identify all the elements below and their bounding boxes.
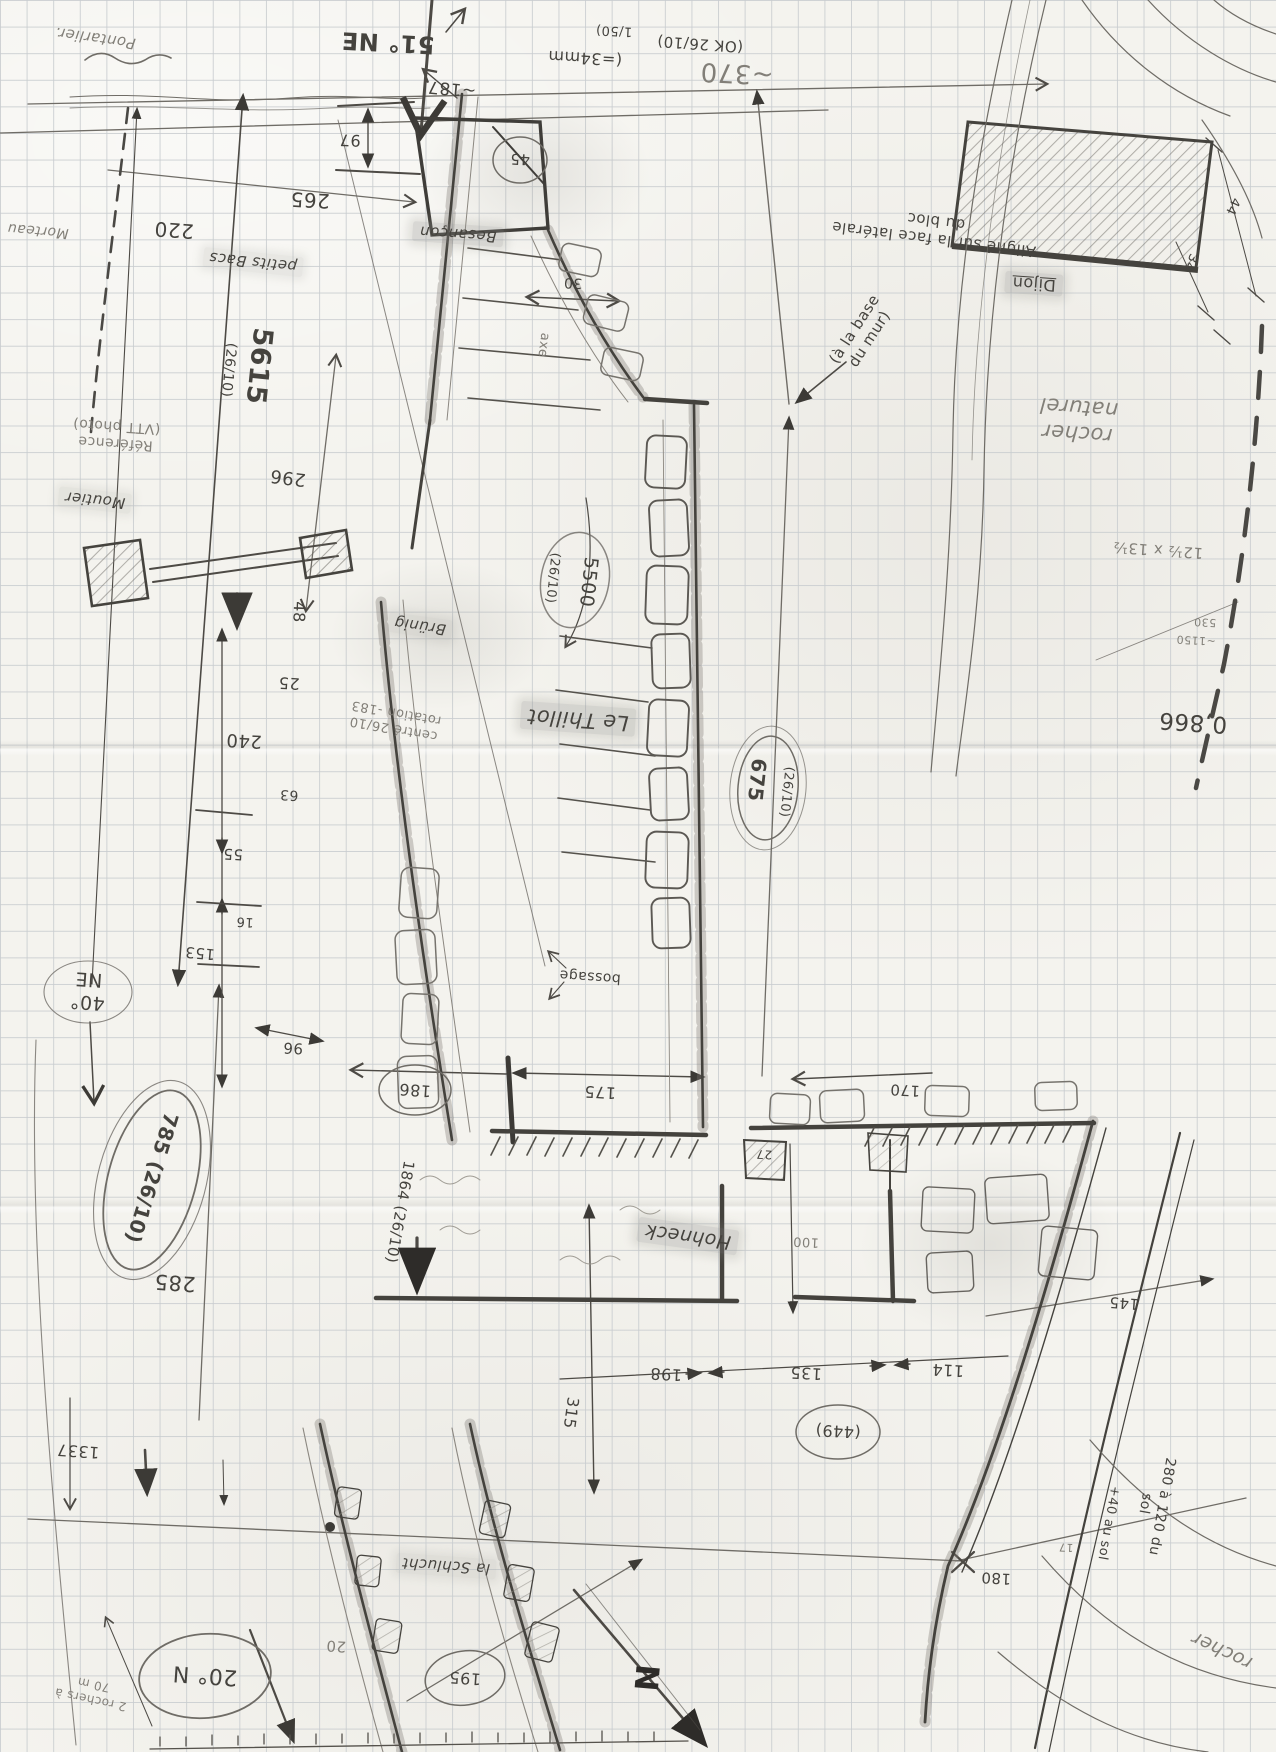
label-dim-1150: ~1150 [1176, 632, 1216, 647]
label-dim-265: 265 [290, 187, 331, 213]
label-reference: Référence (VTT photo) [71, 414, 161, 454]
label-dim-1337: 1337 [56, 1440, 100, 1462]
label-axe: axe [534, 332, 553, 359]
label-dim-170: 170 [889, 1080, 920, 1100]
label-dim-195: 195 [448, 1667, 481, 1689]
label-bearing-51ne: 51° NE [341, 25, 436, 59]
label-dim-145: 145 [1108, 1293, 1139, 1313]
label-dim-30: 30 [563, 273, 582, 291]
label-alt-0866: 0,866 [1158, 706, 1228, 739]
label-dim-285: 285 [153, 1268, 196, 1296]
bloc-brunig [300, 530, 352, 578]
label-dim-198: 198 [649, 1363, 682, 1384]
label-dim-135: 135 [789, 1362, 822, 1383]
label-dim-20: 20 [325, 1636, 346, 1656]
label-dim-175: 175 [583, 1081, 616, 1102]
label-dim-296: 296 [269, 464, 307, 490]
label-dim-27: 27 [755, 1146, 772, 1161]
label-north-arrow-n: N [625, 1663, 666, 1694]
label-dim-187: ~187 [427, 76, 477, 101]
label-bearing-20n: 20° N [172, 1658, 239, 1689]
label-dim-186: 186 [398, 1079, 431, 1101]
label-dim-449: (449) [815, 1420, 861, 1442]
sketch-strokes [0, 0, 1276, 1752]
sight-lines [0, 53, 1246, 1745]
label-dim-114: 114 [931, 1359, 964, 1380]
label-dim-240: 240 [226, 728, 263, 752]
label-scale-150: 1/50) [595, 21, 633, 39]
label-num-675: 675 [743, 757, 772, 803]
circled-annotations [44, 137, 880, 1724]
label-dim-220: 220 [153, 216, 194, 243]
label-dim-153: 153 [184, 943, 216, 964]
label-dim-16: 16 [236, 913, 254, 930]
label-dim-97: 97 [339, 130, 361, 150]
label-dim-530: 530 [1193, 615, 1216, 630]
survey-sketch-sheet: Pontarlier. 51° NE ~187 97 265 220 Morte… [0, 0, 1276, 1752]
label-scale-34mm: (=34mm [547, 46, 622, 69]
label-rocher-naturel: rocher naturel [1037, 392, 1119, 449]
label-bearing-40ne: 40° NE [69, 966, 107, 1015]
label-dim-25: 25 [278, 673, 300, 694]
label-dim-63: 63 [279, 785, 299, 803]
ruler-scale [150, 1741, 688, 1749]
label-dim-45: 45 [509, 149, 530, 168]
label-dim-370: ~370 [700, 54, 775, 90]
label-dim-48: 48 [289, 601, 309, 623]
walls [303, 94, 1194, 1752]
bloc-corner [868, 1133, 908, 1172]
label-dim-55: 55 [222, 844, 243, 863]
label-dim-17: 17 [1058, 1540, 1074, 1554]
label-dim-96: 96 [282, 1038, 303, 1057]
bloc-moutier [84, 540, 148, 606]
label-dim-180: 180 [980, 1568, 1011, 1588]
label-dijon: Dijon [1004, 271, 1063, 296]
label-dim-100: 100 [792, 1232, 819, 1249]
